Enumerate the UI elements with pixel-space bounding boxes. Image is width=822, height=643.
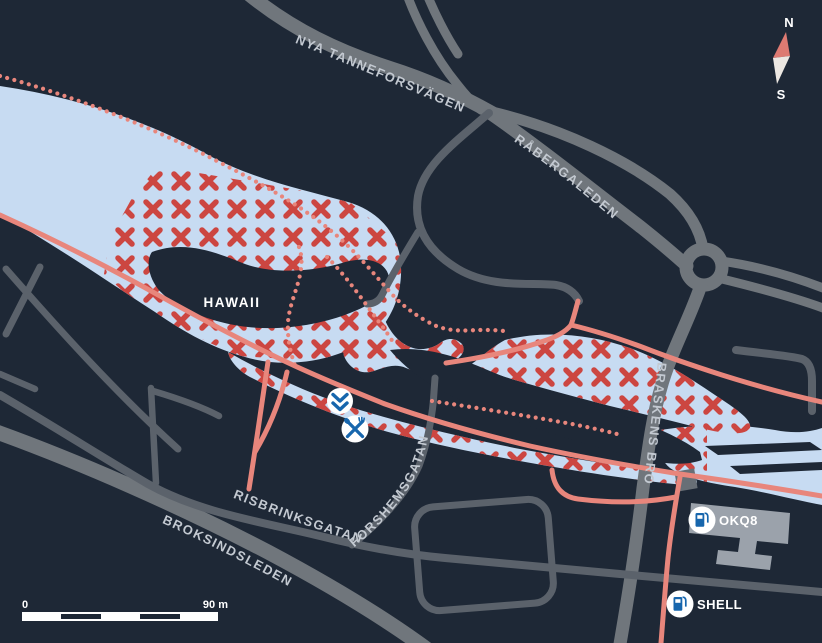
place-label-hawaii: HAWAII [203, 295, 260, 310]
compass-south-label: S [777, 87, 786, 102]
map-background [0, 0, 822, 643]
scale-bar-segment [61, 614, 101, 619]
map-canvas: NYA TANNEFORSVÄGEN RÅBERGALEDEN BRASKENS… [0, 0, 822, 643]
scale-bar-track [22, 612, 218, 621]
rapids-marker[interactable] [327, 388, 353, 414]
shell-label: SHELL [697, 597, 742, 612]
okq8-label: OKQ8 [719, 513, 758, 528]
food-marker[interactable] [342, 416, 369, 443]
scale-end-label: 90 m [203, 599, 228, 611]
fishing-map: NYA TANNEFORSVÄGEN RÅBERGALEDEN BRASKENS… [0, 0, 822, 643]
compass-north-label: N [784, 15, 793, 30]
scale-start-label: 0 [22, 599, 28, 611]
scale-bar-segment [140, 614, 180, 619]
